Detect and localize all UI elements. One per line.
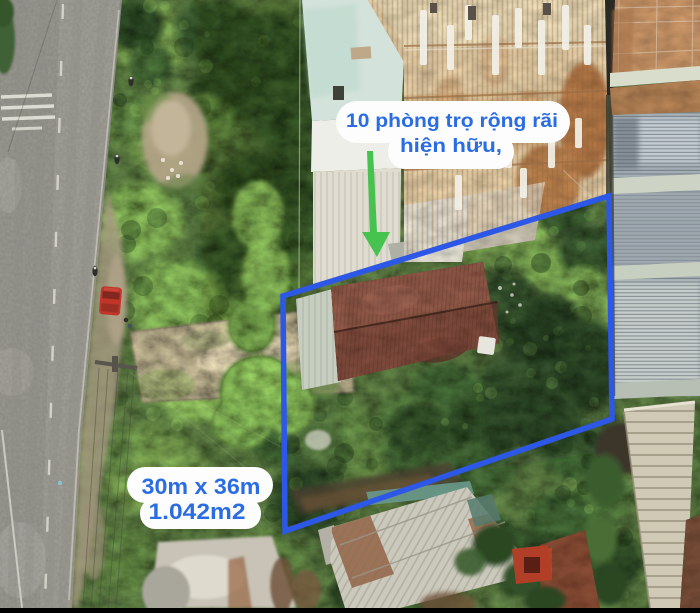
svg-text:hiện hữu,: hiện hữu, [400, 136, 502, 157]
svg-text:1.042m2: 1.042m2 [149, 499, 246, 524]
svg-text:10 phòng trọ rộng rãi: 10 phòng trọ rộng rãi [346, 111, 558, 132]
svg-text:30m x 36m: 30m x 36m [142, 474, 261, 499]
